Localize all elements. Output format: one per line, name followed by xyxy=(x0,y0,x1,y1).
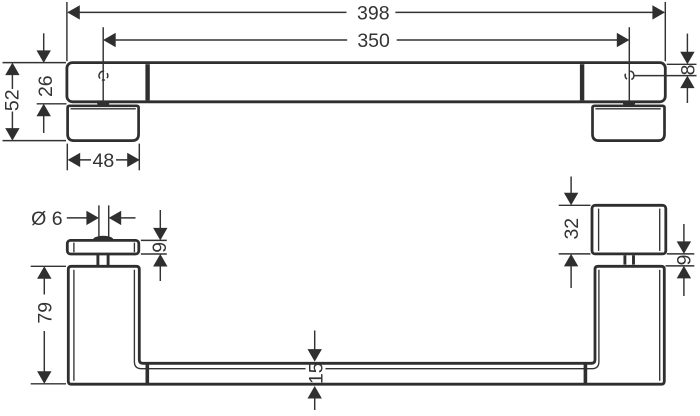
svg-text:26: 26 xyxy=(35,75,57,97)
svg-text:Ø 6: Ø 6 xyxy=(31,208,62,230)
svg-text:350: 350 xyxy=(357,30,390,52)
svg-text:79: 79 xyxy=(34,302,56,324)
svg-text:9: 9 xyxy=(673,255,695,266)
svg-text:52: 52 xyxy=(1,89,23,111)
svg-text:32: 32 xyxy=(561,218,583,240)
svg-text:8: 8 xyxy=(677,65,699,76)
svg-text:15: 15 xyxy=(306,362,328,384)
svg-text:398: 398 xyxy=(357,3,390,25)
svg-text:48: 48 xyxy=(93,150,115,172)
svg-text:9: 9 xyxy=(149,242,171,253)
